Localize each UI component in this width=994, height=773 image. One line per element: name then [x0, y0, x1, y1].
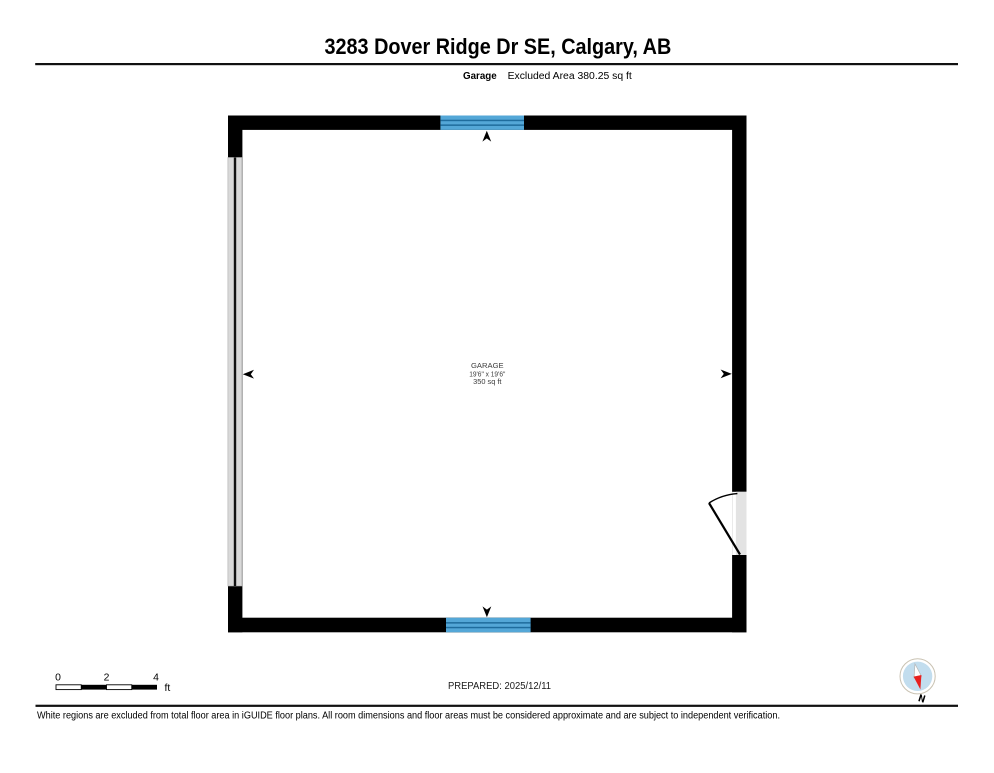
svg-text:Excluded Area 380.25 sq ft: Excluded Area 380.25 sq ft [508, 71, 632, 82]
svg-text:0: 0 [55, 673, 61, 684]
svg-text:350 sq ft: 350 sq ft [473, 377, 501, 386]
svg-text:2: 2 [104, 673, 110, 684]
svg-text:Garage: Garage [463, 71, 497, 82]
svg-text:GARAGE: GARAGE [471, 361, 504, 370]
svg-text:3283 Dover Ridge Dr SE, Calgar: 3283 Dover Ridge Dr SE, Calgary, AB [325, 34, 672, 59]
svg-text:4: 4 [153, 673, 159, 684]
svg-text:PREPARED: 2025/12/11: PREPARED: 2025/12/11 [448, 681, 551, 692]
svg-text:White regions are excluded fro: White regions are excluded from total fl… [37, 711, 780, 722]
svg-text:ft: ft [165, 683, 171, 694]
